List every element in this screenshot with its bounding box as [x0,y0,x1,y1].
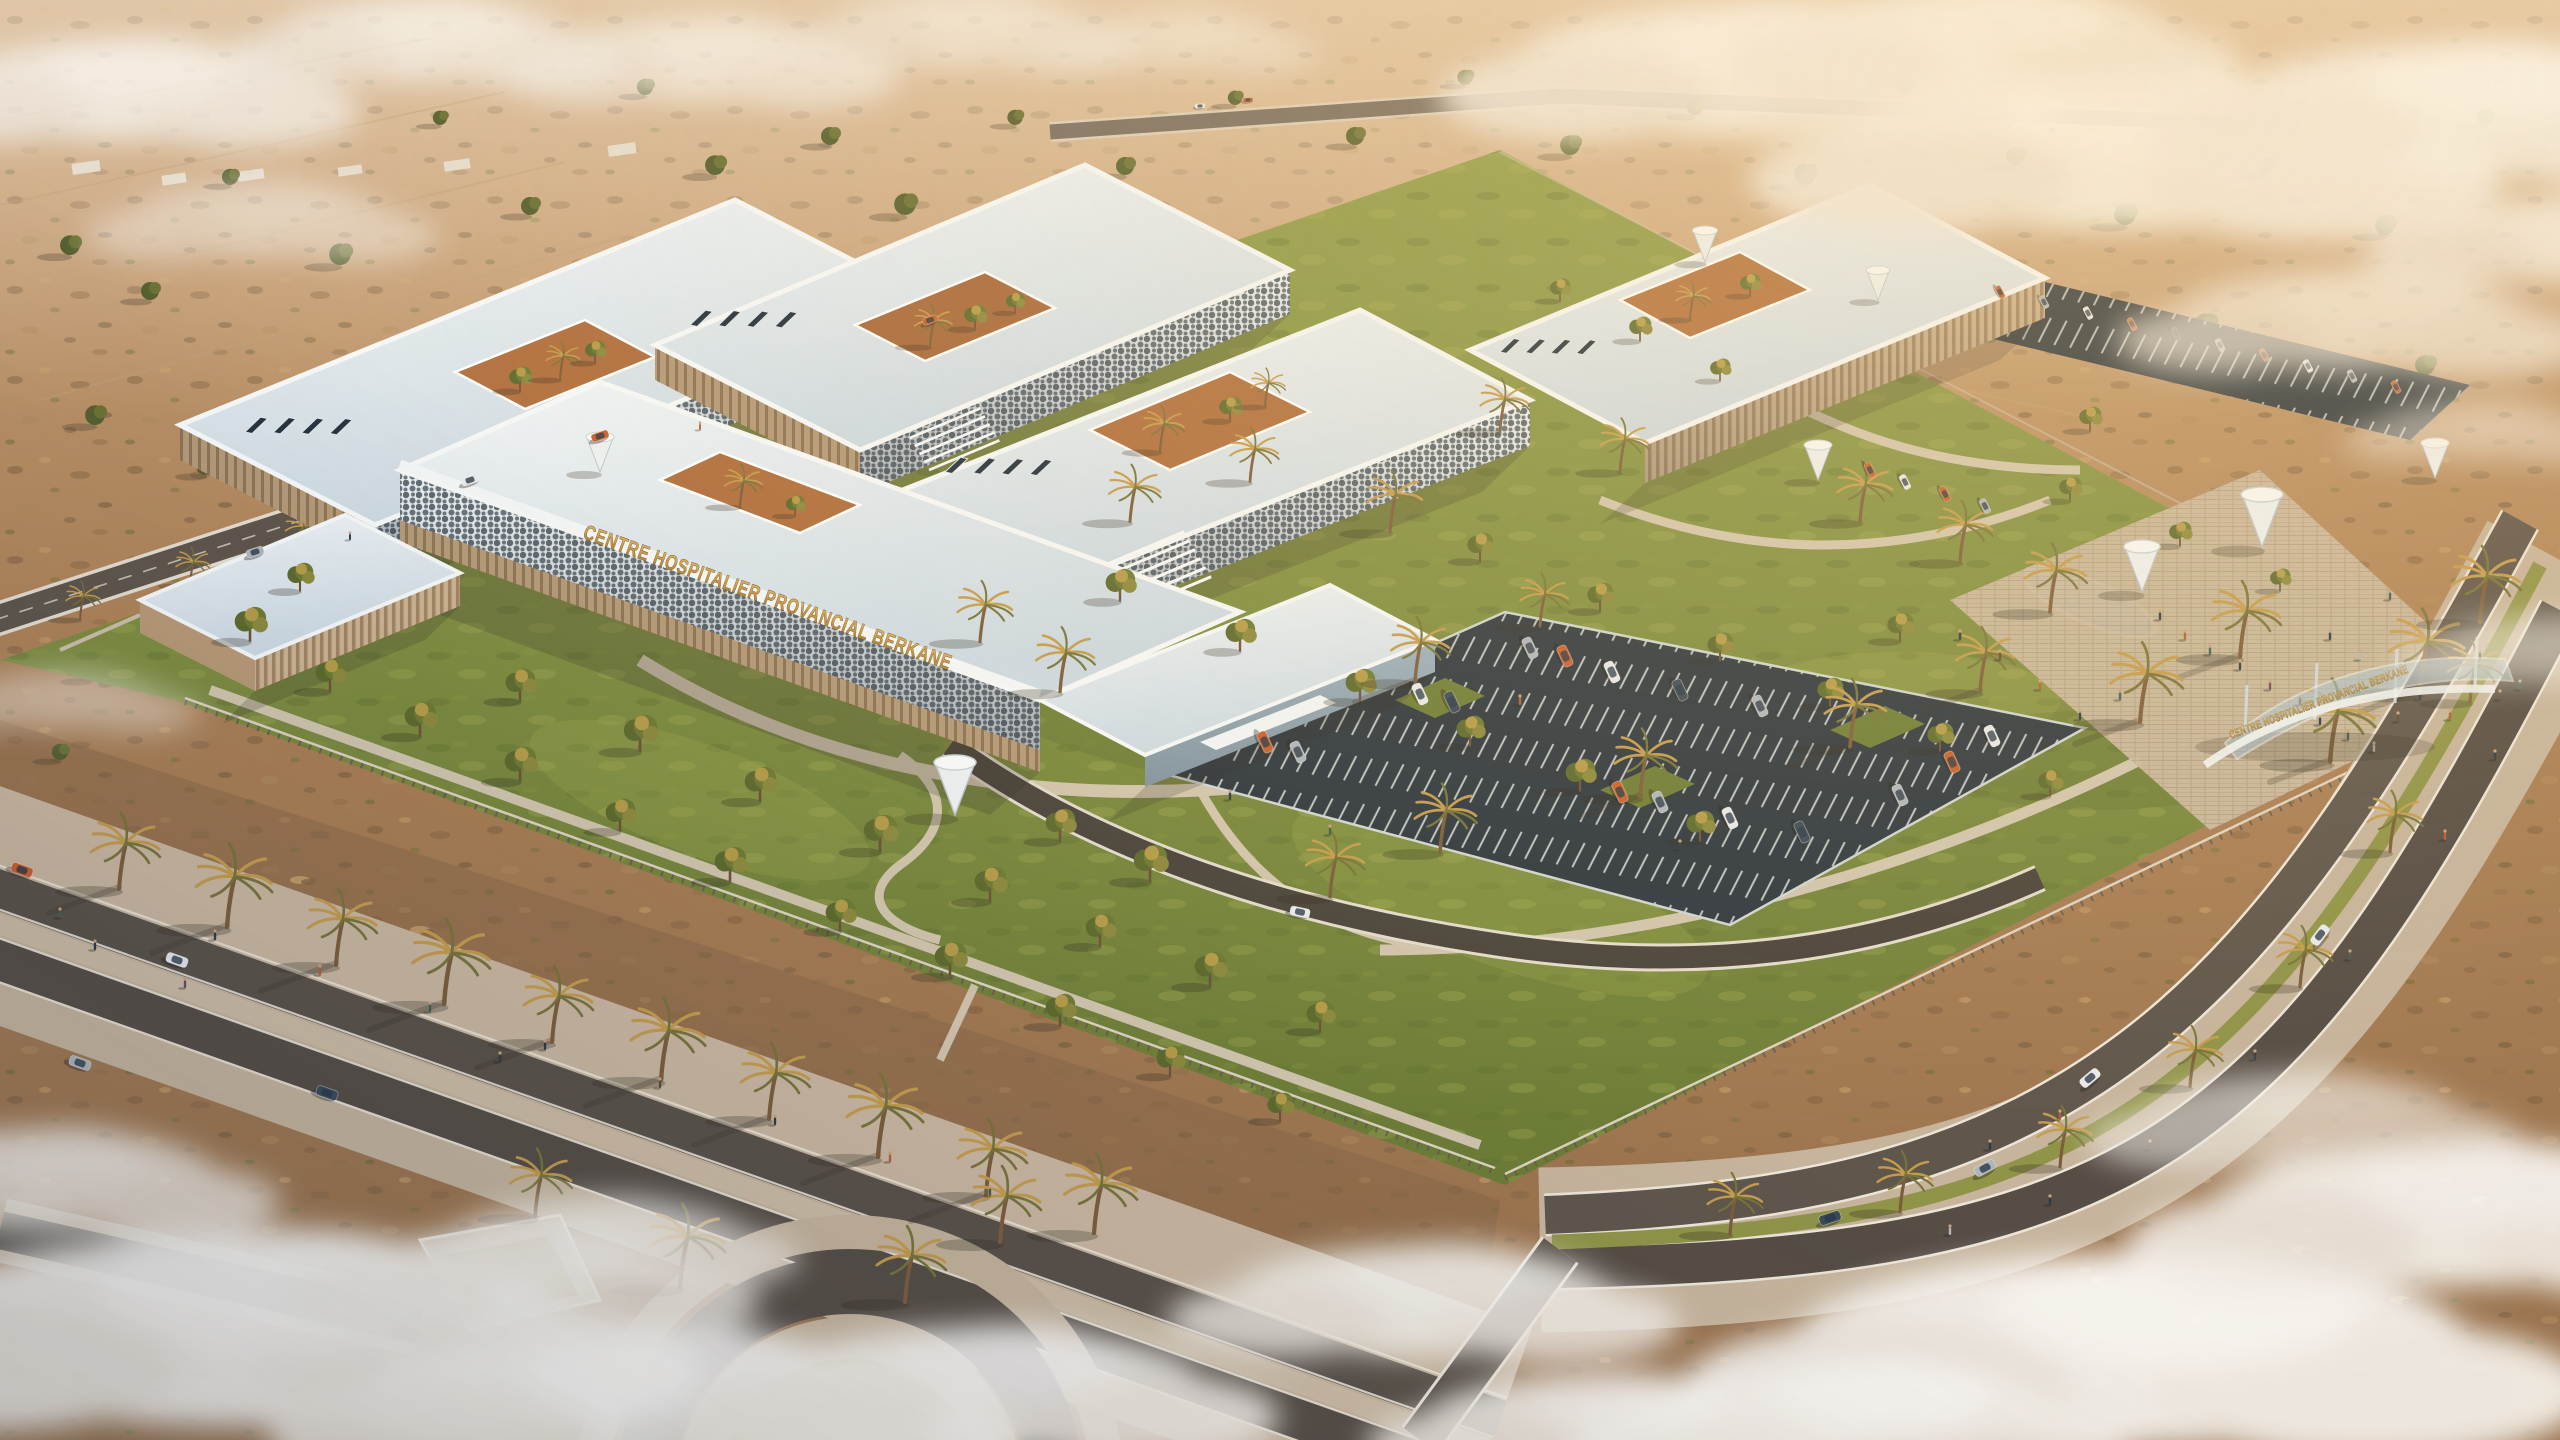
screenshot-root: CENTRE HOSPITALIER PROVANCIAL BERKANE [0,0,2560,1440]
shade-overlay [0,0,2560,1440]
lighting [0,0,2560,1440]
aerial-render: CENTRE HOSPITALIER PROVANCIAL BERKANE [0,0,2560,1440]
